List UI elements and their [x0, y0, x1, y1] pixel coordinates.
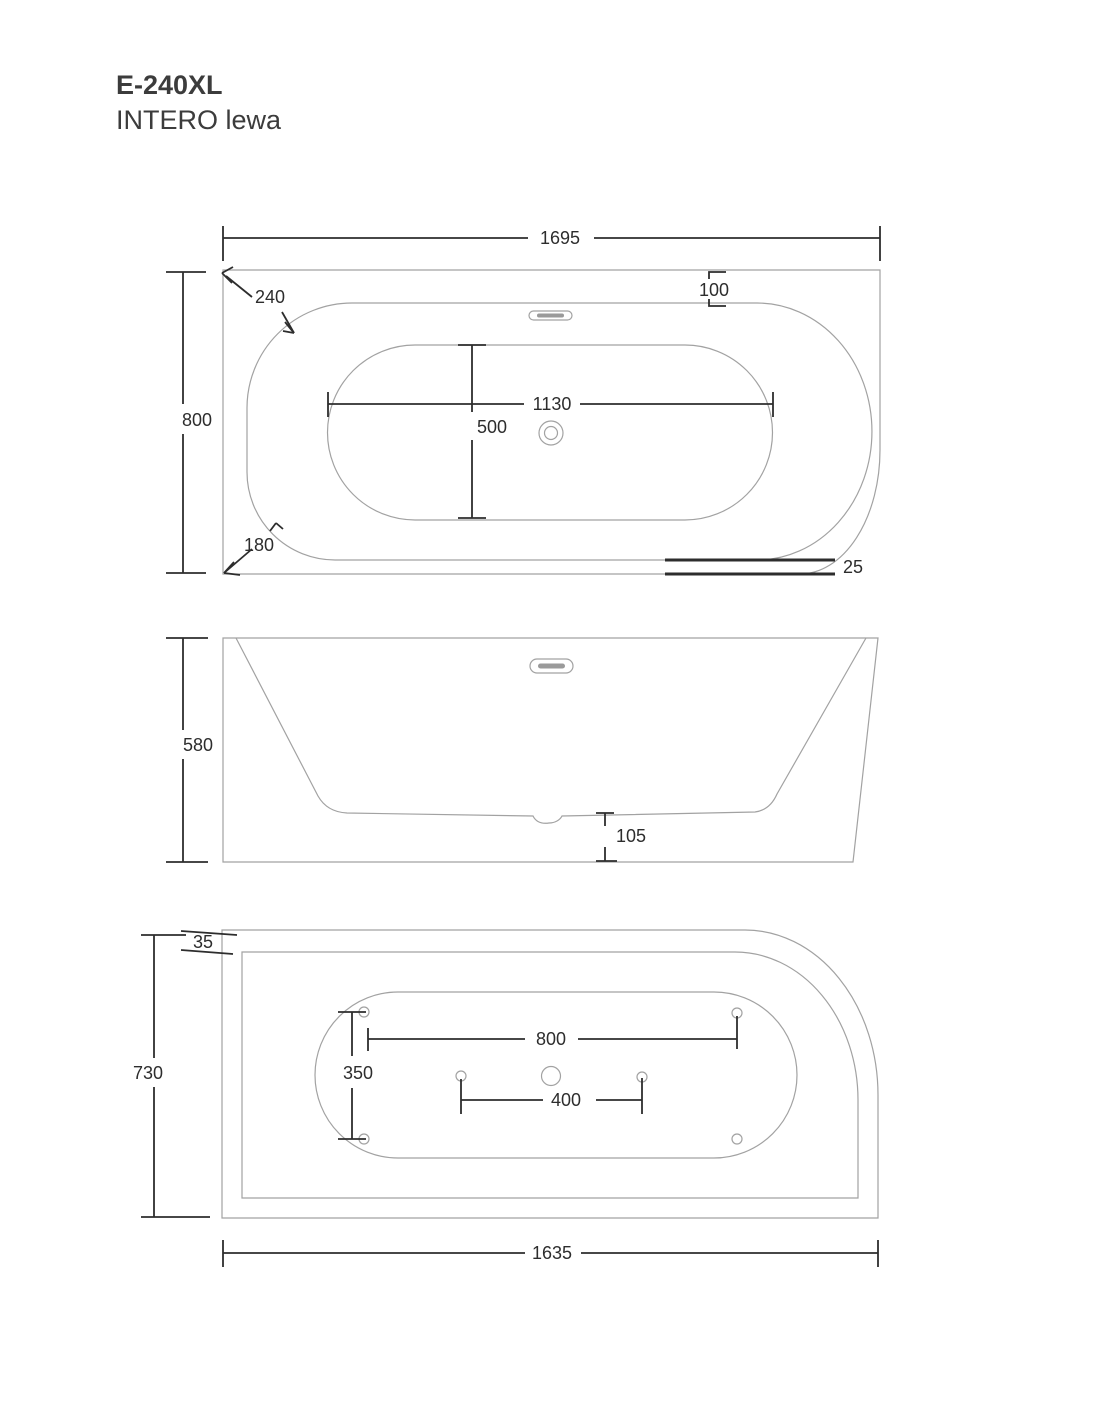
dim-apron-offset-label: 25	[843, 557, 863, 577]
dim-basin-length: 1130	[328, 392, 773, 417]
dim-drain-feet-span-label: 400	[551, 1090, 581, 1110]
top-view-basin-outline	[328, 345, 773, 520]
dim-edge-inset: 100	[699, 272, 729, 306]
dim-feet-span-width-label: 350	[343, 1063, 373, 1083]
technical-drawing: 1695 800 240	[0, 0, 1100, 1422]
dim-height-label: 580	[183, 735, 213, 755]
bottom-view-inner-outline	[242, 952, 858, 1198]
dim-overall-length-label: 1695	[540, 228, 580, 248]
dim-basin-width: 500	[458, 345, 507, 518]
dim-height: 580	[166, 638, 213, 862]
dim-drain-feet-span: 400	[461, 1078, 642, 1114]
dim-overall-width-label: 800	[182, 410, 212, 430]
foot-hole	[732, 1134, 742, 1144]
side-view-outline	[223, 638, 878, 862]
dim-bottom-overall-width: 730	[133, 935, 210, 1217]
top-view-rim-outline	[247, 303, 872, 560]
leader-radius-top: 240	[222, 267, 294, 333]
dim-apron-offset: 25	[665, 557, 863, 577]
dim-base-clearance: 105	[596, 813, 646, 861]
bottom-view: 730 35 800 350	[133, 930, 878, 1267]
dim-feet-span-length-label: 800	[536, 1029, 566, 1049]
drawing-page: E-240XL INTERO lewa	[0, 0, 1100, 1422]
drain-hole-icon	[542, 1067, 561, 1086]
dim-rim-offset-label: 35	[193, 932, 213, 952]
leader-radius-bottom: 180	[224, 523, 283, 575]
dim-radius-bottom-label: 180	[244, 535, 274, 555]
dim-overall-width: 800	[166, 272, 212, 573]
dim-base-clearance-label: 105	[616, 826, 646, 846]
dim-base-length: 1635	[223, 1240, 878, 1267]
dim-basin-width-label: 500	[477, 417, 507, 437]
top-view: 1695 800 240	[166, 226, 880, 577]
feet-holes	[359, 1007, 742, 1144]
side-view: 580 105	[166, 638, 878, 862]
overflow-icon-side	[530, 659, 573, 673]
dim-feet-span-length: 800	[368, 1016, 737, 1051]
dim-basin-length-label: 1130	[533, 394, 572, 414]
overflow-icon	[529, 311, 572, 320]
dim-overall-length: 1695	[223, 226, 880, 261]
bottom-view-outer-outline	[222, 930, 878, 1218]
bottom-view-basin-outline	[315, 992, 797, 1158]
dim-radius-top-label: 240	[255, 287, 285, 307]
dim-base-length-label: 1635	[532, 1243, 572, 1263]
dim-rim-offset: 35	[181, 931, 237, 954]
dim-edge-inset-label: 100	[699, 280, 729, 300]
drain-icon	[539, 421, 563, 445]
dim-bottom-overall-width-label: 730	[133, 1063, 163, 1083]
